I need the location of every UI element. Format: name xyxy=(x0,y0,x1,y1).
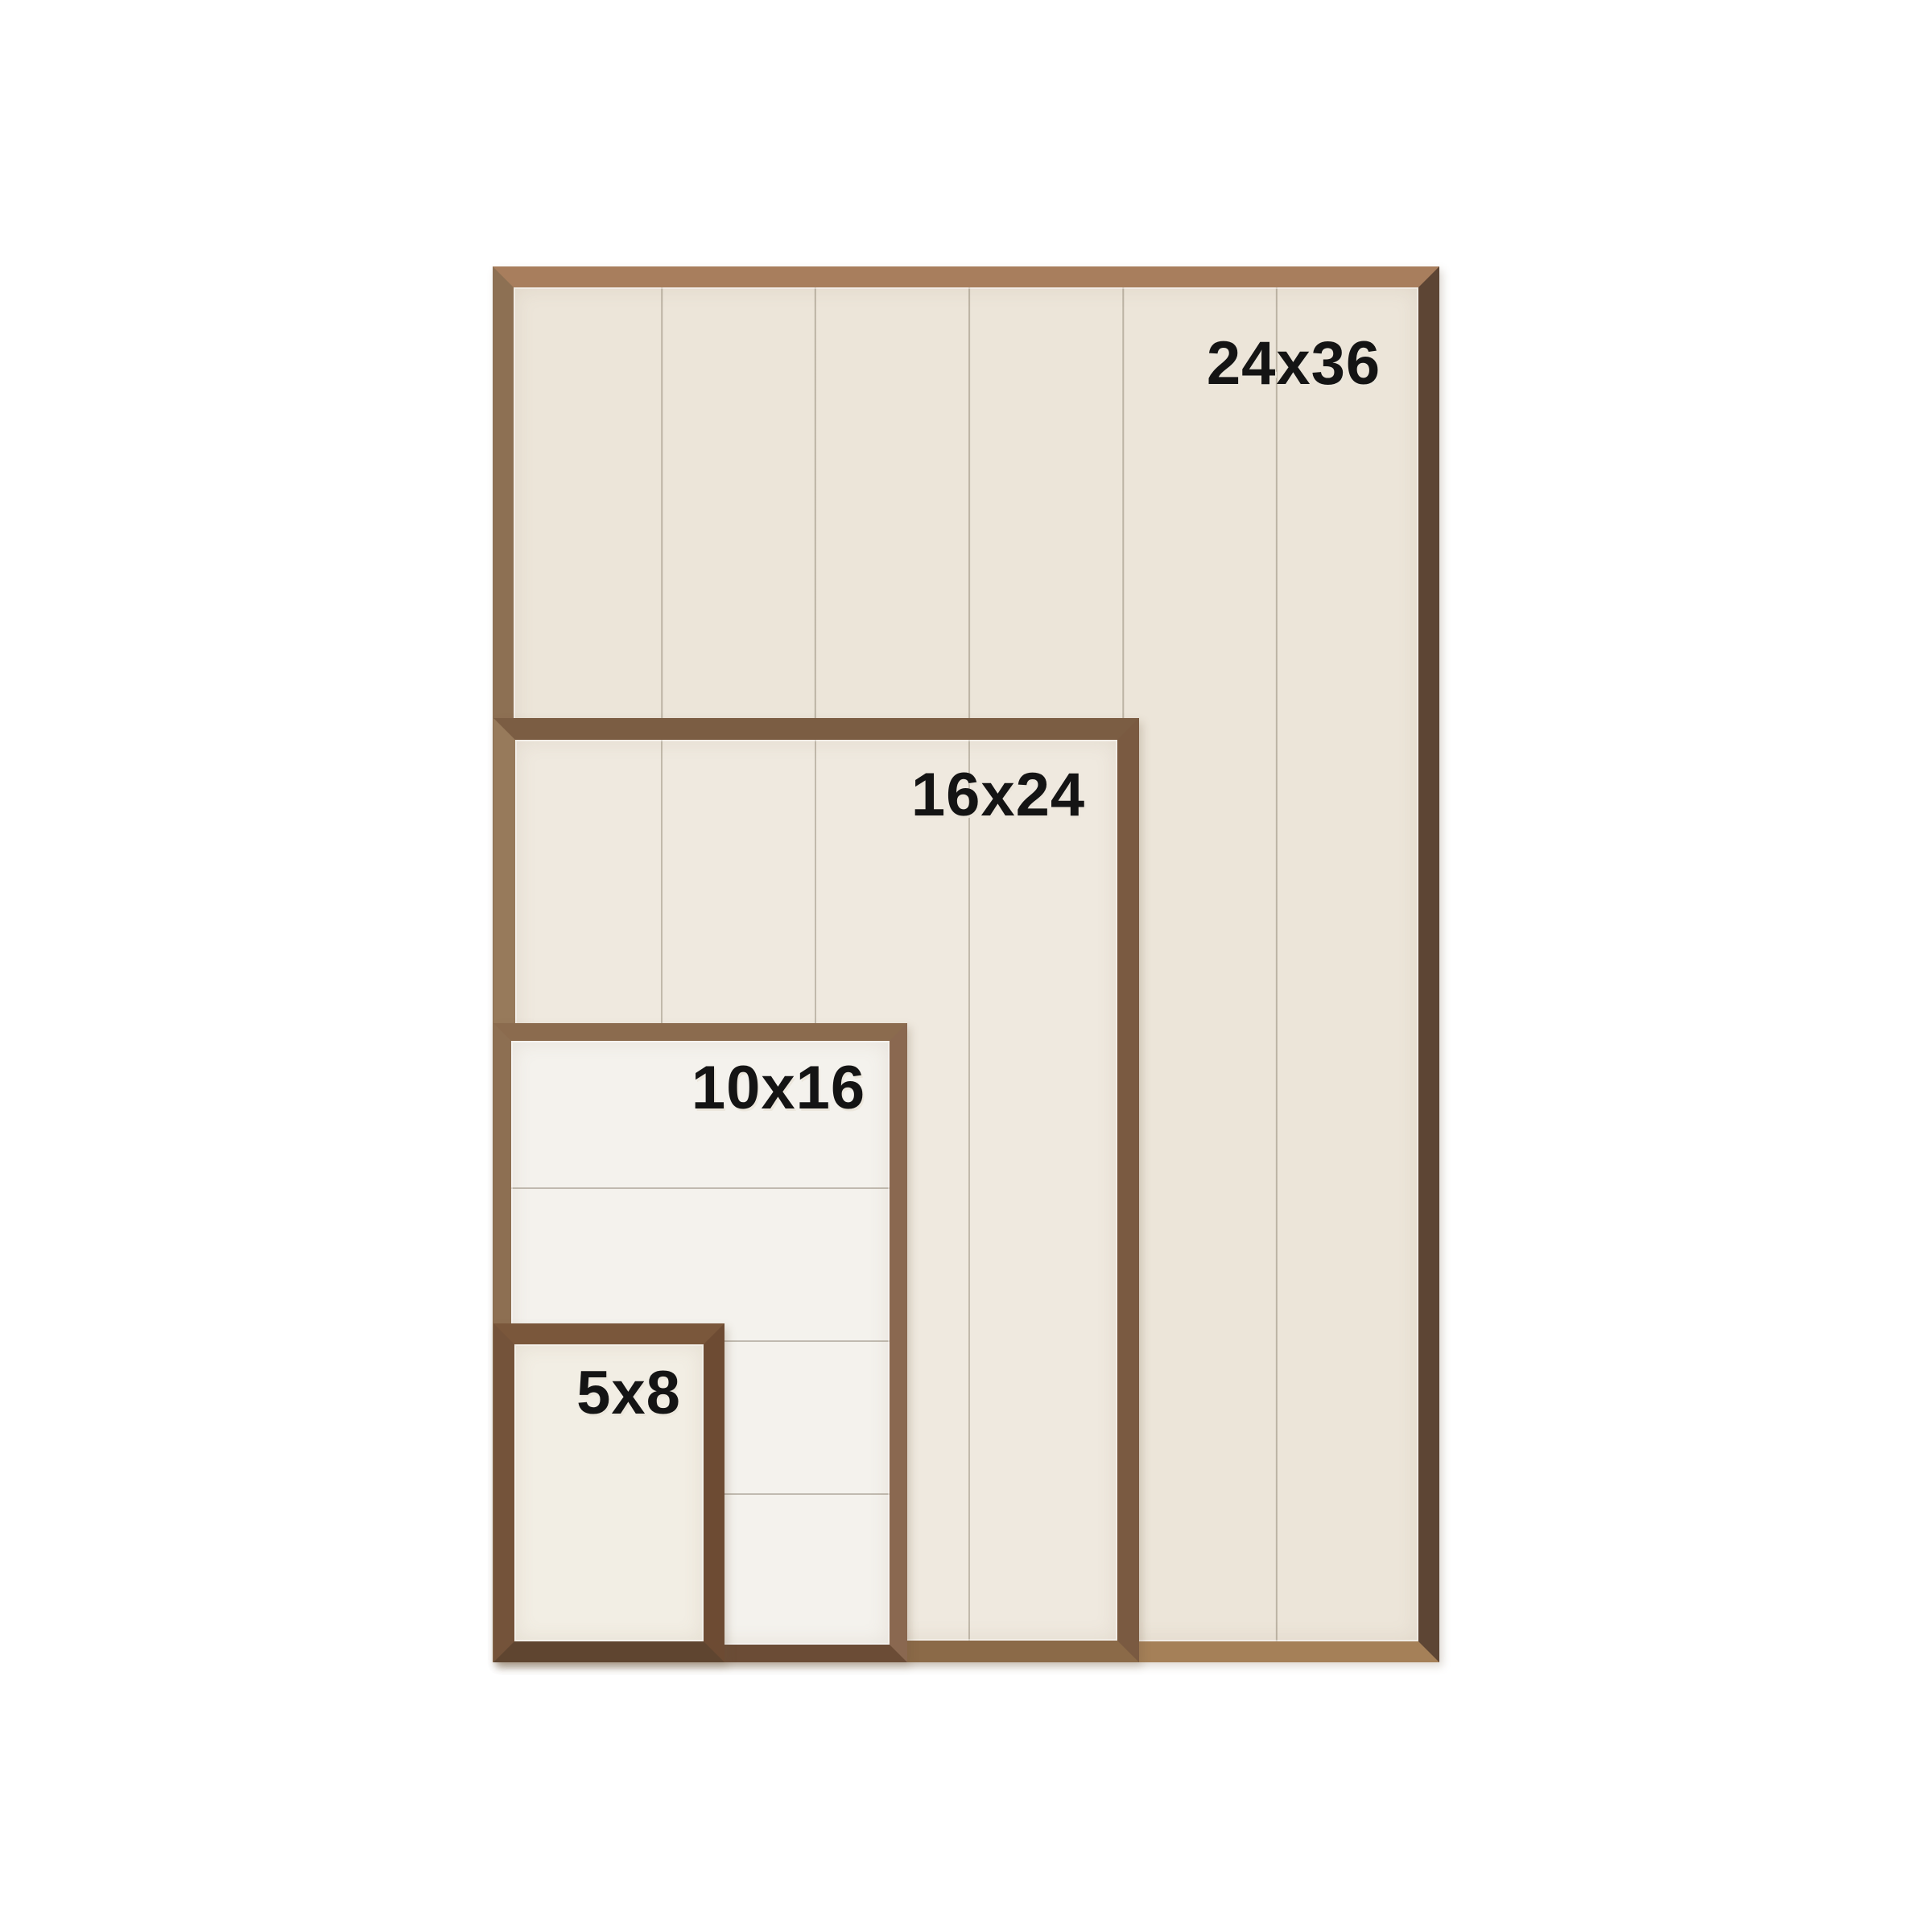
size-label-24x36: 24x36 xyxy=(1207,333,1381,394)
product-size-chart: 24x36 16x24 10x16 5x8 xyxy=(0,0,1932,1932)
size-label-10x16: 10x16 xyxy=(691,1058,865,1119)
size-label-16x24: 16x24 xyxy=(911,765,1085,826)
size-label-5x8: 5x8 xyxy=(576,1363,681,1424)
